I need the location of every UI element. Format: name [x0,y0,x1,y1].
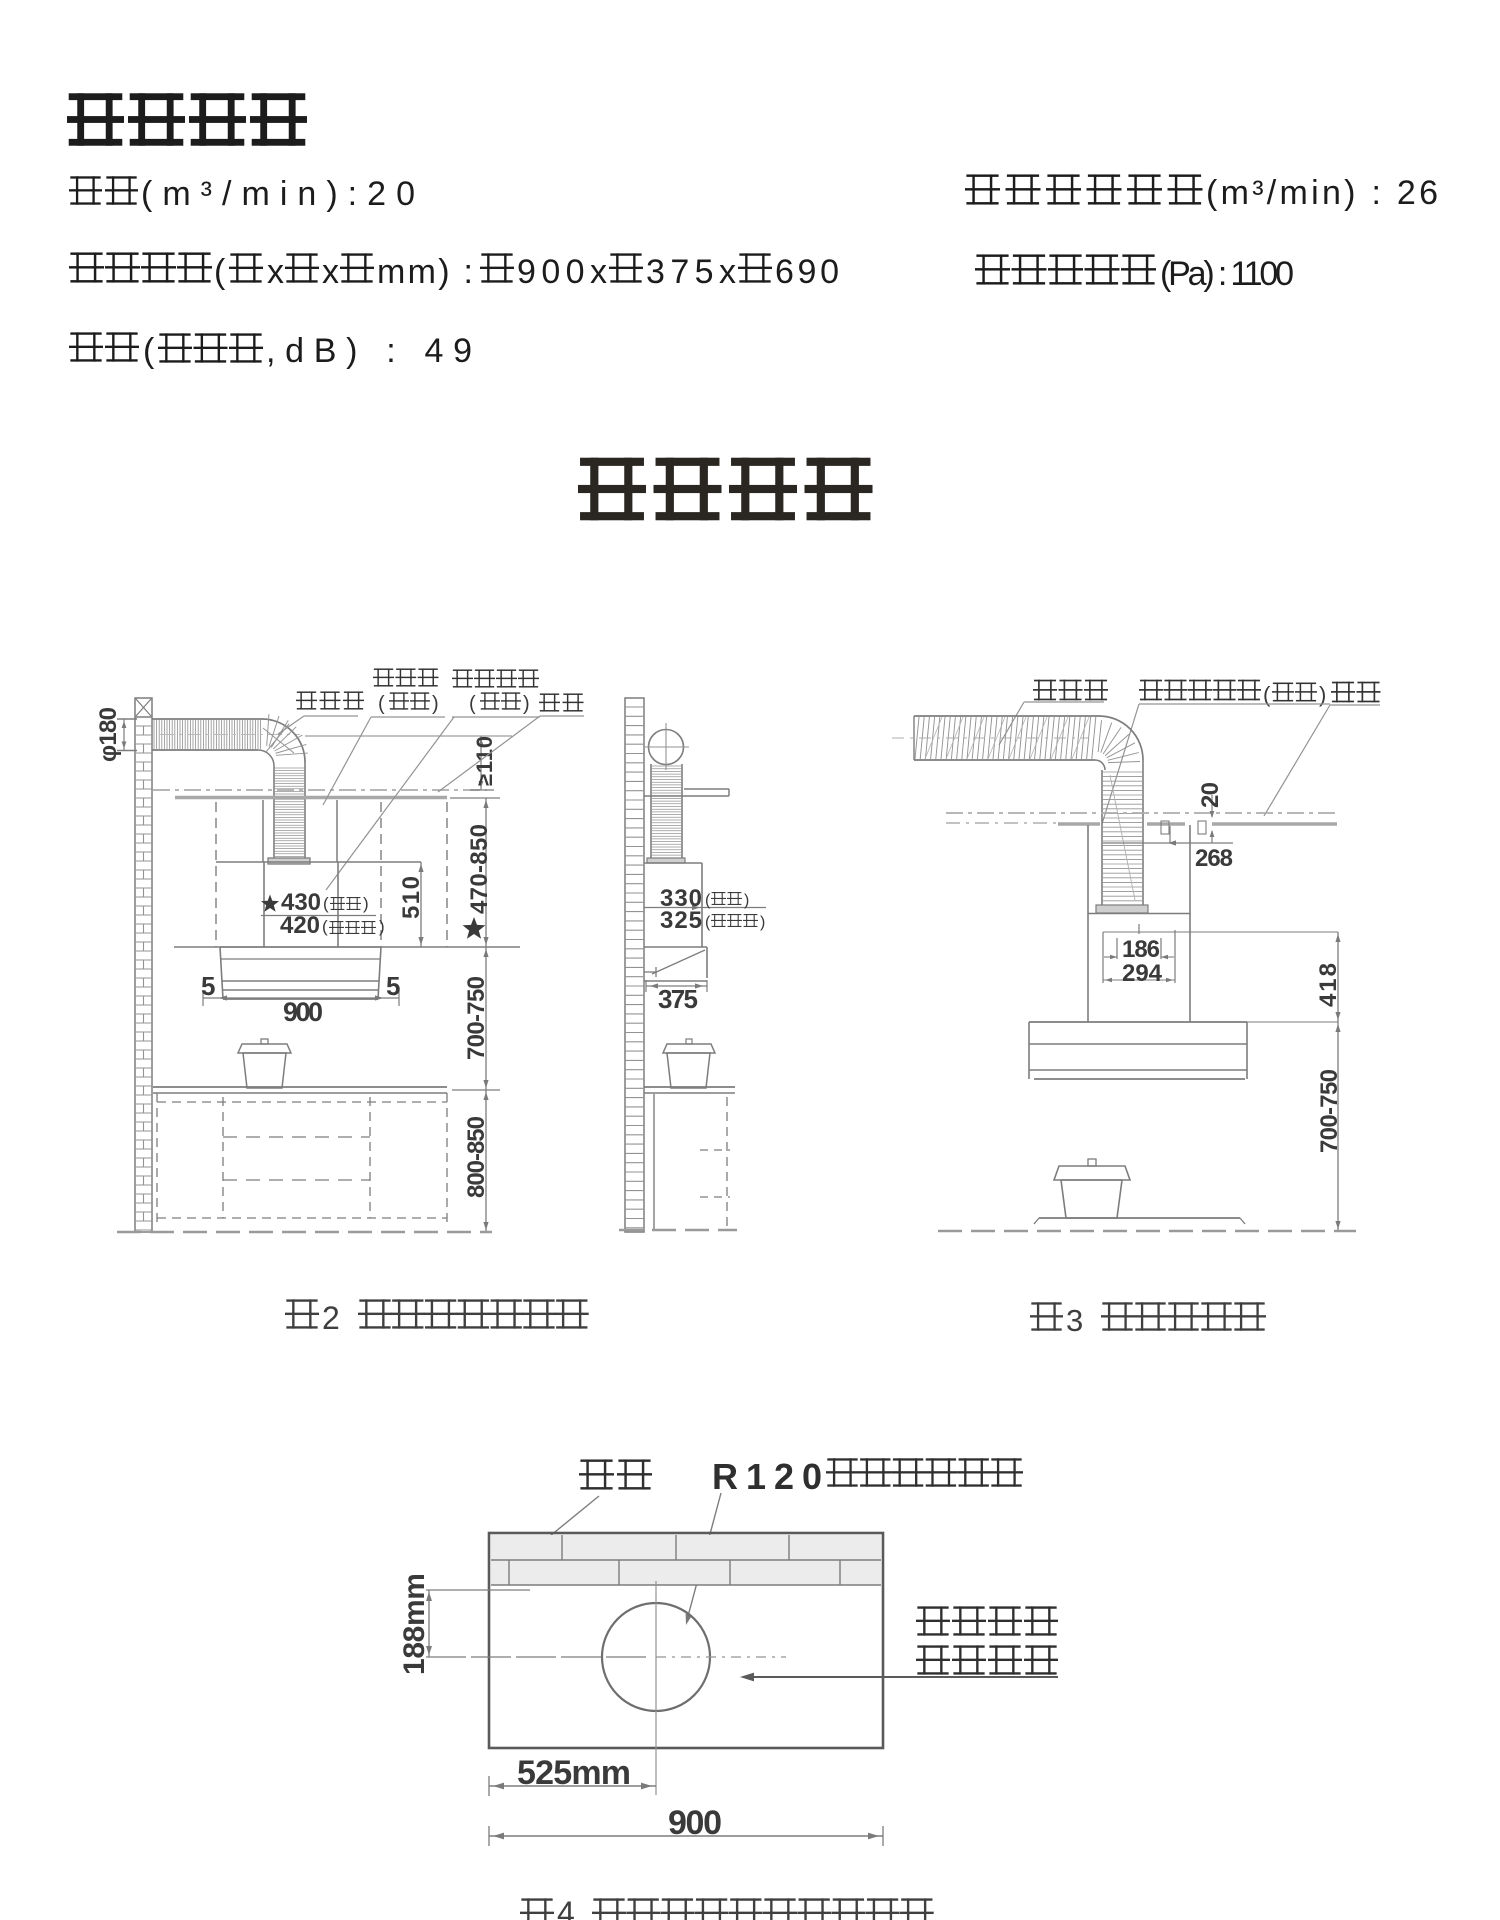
svg-text:(: ( [378,693,385,715]
svg-text:3: 3 [1066,1303,1083,1338]
svg-text:(m³/min) : 26: (m³/min) : 26 [1206,174,1438,212]
svg-text:(m³/min):20: (m³/min):20 [141,175,415,213]
svg-text:188mm: 188mm [398,1573,431,1675]
svg-text:x: x [267,253,284,291]
svg-text:(: ( [1263,682,1271,707]
svg-text:690: 690 [775,253,839,291]
svg-text:mm) :: mm) : [377,253,473,291]
svg-text:900x: 900x [517,253,607,291]
svg-text:900: 900 [283,997,323,1027]
svg-text:525mm: 525mm [517,1754,631,1792]
svg-text:(: ( [143,332,155,370]
svg-text:268: 268 [1195,845,1233,872]
svg-text:φ180: φ180 [95,707,122,762]
svg-text:): ) [744,892,749,909]
svg-text:(: ( [322,917,328,936]
svg-text:700-750: 700-750 [1316,1069,1343,1153]
svg-text:294: 294 [1122,960,1163,987]
svg-text:,dB) : 49: ,dB) : 49 [266,332,472,370]
svg-text:5: 5 [201,971,215,1001]
svg-text:(: ( [323,894,329,913]
svg-text:4: 4 [557,1895,575,1920]
svg-text:700-750: 700-750 [463,976,490,1060]
svg-text:(: ( [469,693,476,715]
svg-text:418: 418 [1315,963,1342,1007]
svg-text:375: 375 [658,984,698,1014]
svg-text:(: ( [705,914,711,931]
svg-text:R120: R120 [712,1456,822,1497]
svg-text:186: 186 [1122,936,1160,963]
svg-text:375x: 375x [646,253,736,291]
svg-text:2: 2 [322,1300,340,1336]
svg-text:900: 900 [668,1804,722,1842]
svg-text:): ) [363,894,369,913]
svg-text:(: ( [705,892,711,909]
svg-text:420: 420 [280,912,320,939]
svg-text:): ) [1319,682,1326,707]
svg-text:20: 20 [1197,782,1224,808]
svg-text:(Pa) : 1100: (Pa) : 1100 [1160,255,1294,293]
svg-text:): ) [379,917,385,936]
svg-text:325: 325 [660,907,702,934]
svg-text:): ) [432,693,439,715]
svg-text:x: x [322,253,339,291]
svg-text:): ) [523,693,530,715]
svg-text:470-850: 470-850 [466,824,493,914]
svg-text:800-850: 800-850 [463,1116,490,1198]
svg-text:510: 510 [398,876,425,919]
svg-text:≥110: ≥110 [472,736,497,786]
svg-text:5: 5 [386,971,400,1001]
svg-text:): ) [760,914,765,931]
svg-text:(: ( [214,253,226,291]
